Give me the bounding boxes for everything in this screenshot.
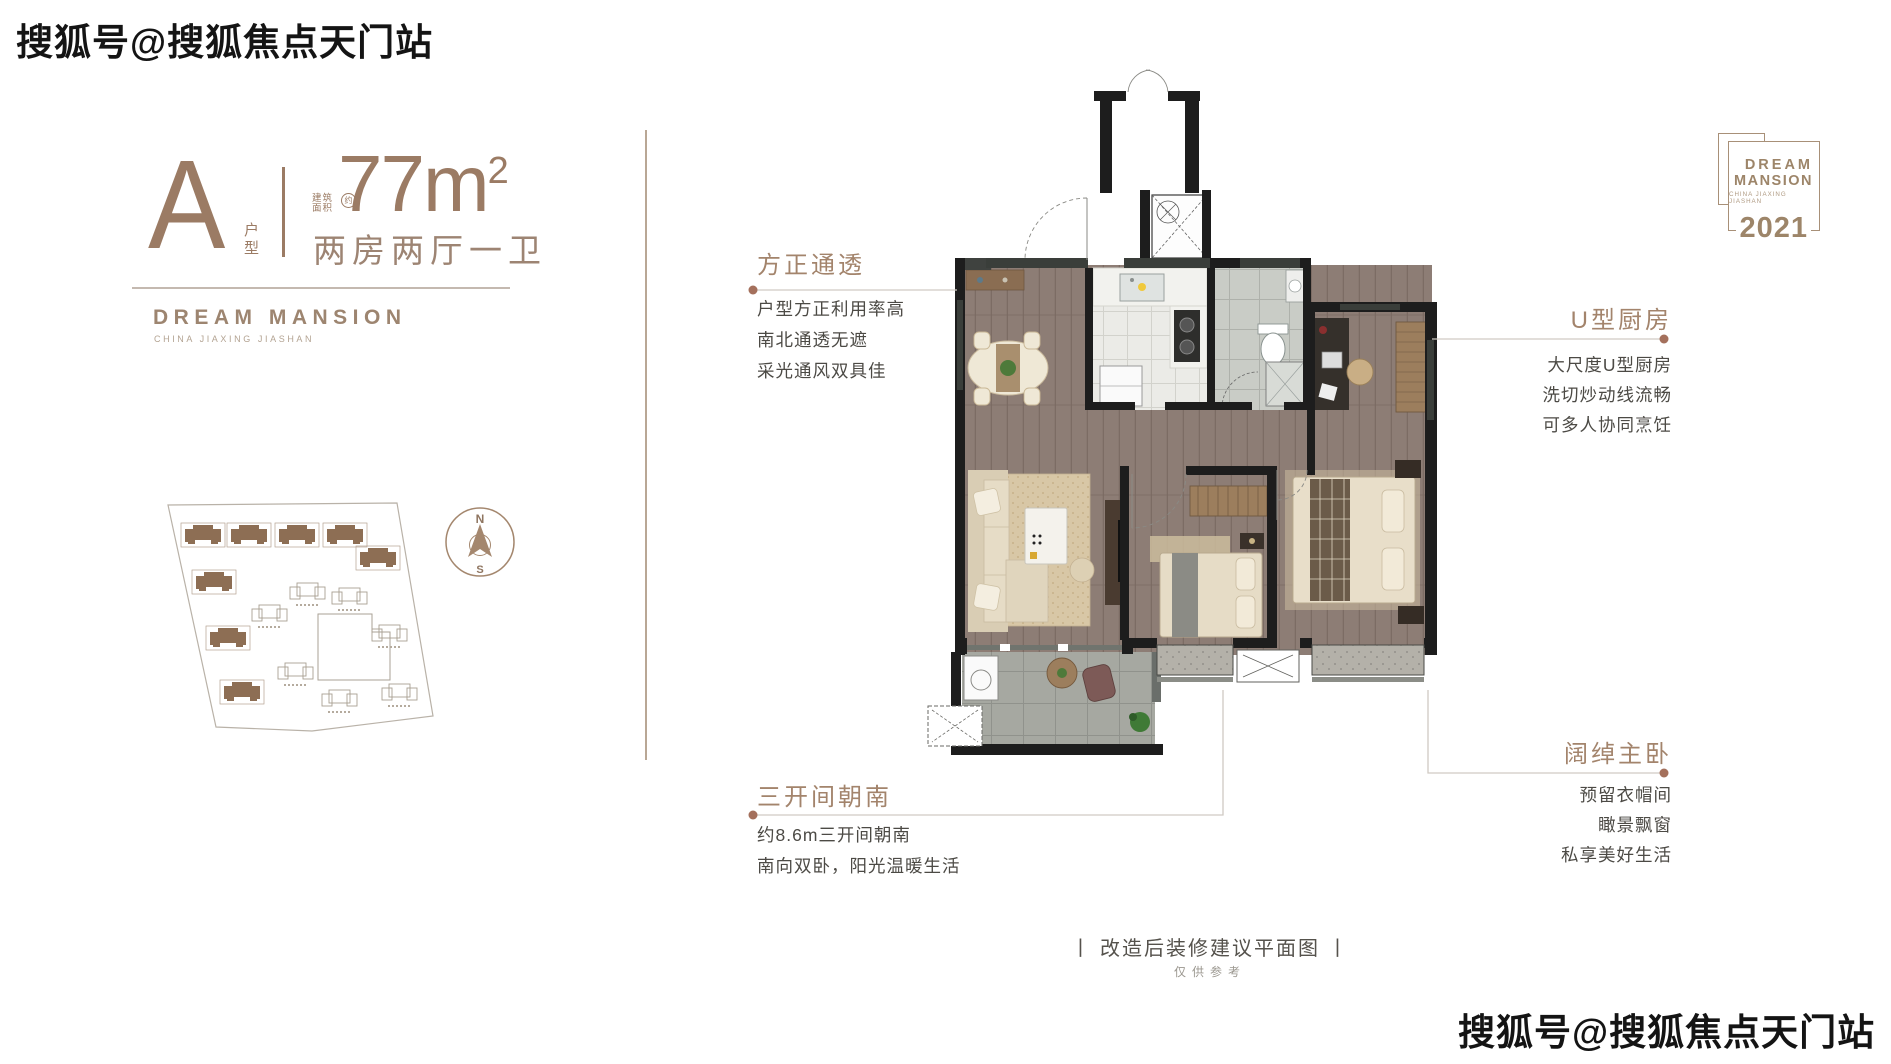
compass-north-label: N bbox=[476, 512, 485, 526]
logo-line2: MANSION bbox=[1734, 173, 1813, 189]
logo-line1: DREAM bbox=[1745, 157, 1813, 173]
callout-line: 瞰景飘窗 bbox=[1422, 810, 1672, 840]
callout-u-kitchen-title: U型厨房 bbox=[1422, 300, 1672, 335]
callout-three-bays-body: 约8.6m三开间朝南 南向双卧，阳光温暖生活 bbox=[757, 820, 961, 882]
brand-name: DREAM MANSION bbox=[153, 306, 407, 330]
callout-line: 南北通透无遮 bbox=[757, 325, 905, 356]
compass-south-label: S bbox=[476, 564, 483, 576]
compass: N S bbox=[446, 508, 514, 576]
callout-line: 南向双卧，阳光温暖生活 bbox=[757, 851, 961, 882]
callout-three-bays-title: 三开间朝南 bbox=[757, 777, 892, 812]
type-divider-line bbox=[282, 167, 285, 257]
watermark-bottom-right: 搜狐号@搜狐焦点天门站 bbox=[1458, 1002, 1875, 1056]
callout-square-transparent-body: 户型方正利用率高 南北通透无遮 采光通风双具佳 bbox=[757, 294, 905, 387]
area-superscript: 2 bbox=[488, 150, 509, 192]
balcony-sliding-door bbox=[967, 644, 1122, 651]
callout-u-kitchen-body: 大尺度U型厨房 洗切炒动线流畅 可多人协同烹饪 bbox=[1422, 350, 1672, 440]
logo-front-square: DREAM MANSION CHINA JIAXING JIASHAN 2021 bbox=[1728, 141, 1820, 231]
area-prefix: 建筑 面积 bbox=[312, 194, 333, 214]
callout-line: 约8.6m三开间朝南 bbox=[757, 820, 961, 851]
callout-line: 大尺度U型厨房 bbox=[1422, 350, 1672, 380]
callout-master-bedroom-title: 阔绰主卧 bbox=[1422, 734, 1672, 769]
leader-dot bbox=[1660, 769, 1669, 778]
plan-caption: 丨 改造后装修建议平面图 丨 bbox=[950, 932, 1470, 961]
floor-plan bbox=[928, 70, 1437, 755]
entry-lobby bbox=[1094, 70, 1211, 260]
leader-dot bbox=[1660, 335, 1669, 344]
vertical-divider-line bbox=[645, 130, 647, 760]
callout-line: 洗切炒动线流畅 bbox=[1422, 380, 1672, 410]
brand-subtitle: CHINA JIAXING JIASHAN bbox=[154, 334, 314, 344]
watermark-top-left: 搜狐号@搜狐焦点天门站 bbox=[16, 12, 433, 66]
graphics-layer: N S bbox=[0, 0, 1891, 1064]
area-prefix-bottom: 面积 bbox=[312, 204, 333, 214]
north-arrow-icon bbox=[468, 524, 492, 557]
card-divider-rule bbox=[132, 287, 510, 289]
poster-canvas: { "watermarks": { "top_left": "搜狐号@搜狐焦点天… bbox=[0, 0, 1891, 1064]
area-value: 77m2 bbox=[338, 144, 509, 224]
site-plan bbox=[168, 503, 433, 731]
logo-year: 2021 bbox=[1736, 212, 1811, 245]
callout-line: 预留衣帽间 bbox=[1422, 780, 1672, 810]
callout-square-transparent-title: 方正通透 bbox=[757, 245, 865, 280]
plan-caption-note: 仅供参考 bbox=[950, 963, 1470, 980]
callout-line: 私享美好生活 bbox=[1422, 840, 1672, 870]
rooms-summary: 两房两厅一卫 bbox=[313, 224, 547, 272]
callout-line: 可多人协同烹饪 bbox=[1422, 410, 1672, 440]
callout-line: 户型方正利用率高 bbox=[757, 294, 905, 325]
logo-line3: CHINA JIAXING JIASHAN bbox=[1729, 191, 1813, 205]
unit-type-letter: A bbox=[148, 142, 225, 268]
callout-master-bedroom-body: 预留衣帽间 瞰景飘窗 私享美好生活 bbox=[1422, 780, 1672, 870]
ac-unit bbox=[1237, 650, 1299, 682]
ac-unit-balcony bbox=[928, 706, 982, 746]
unit-type-label: 户型 bbox=[243, 222, 258, 258]
callout-line: 采光通风双具佳 bbox=[757, 356, 905, 387]
dream-mansion-logo: DREAM MANSION CHINA JIAXING JIASHAN 2021 bbox=[1700, 118, 1850, 253]
